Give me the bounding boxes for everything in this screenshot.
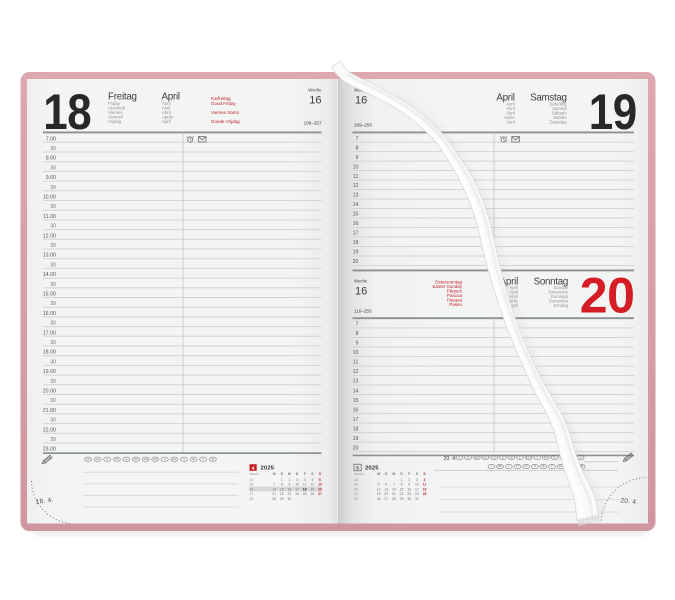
svg-text:IRL: IRL: [172, 457, 177, 461]
svg-text:14: 14: [353, 202, 359, 208]
svg-text:9: 9: [356, 341, 359, 347]
svg-text:E: E: [126, 457, 128, 461]
svg-text:18: 18: [353, 240, 359, 246]
svg-text:22: 22: [400, 492, 404, 496]
svg-text:12: 12: [377, 487, 381, 491]
svg-text:30: 30: [50, 204, 56, 210]
svg-text:13: 13: [353, 193, 359, 199]
svg-text:3: 3: [296, 478, 298, 482]
svg-text:2025: 2025: [261, 466, 275, 472]
svg-text:5: 5: [356, 465, 359, 471]
svg-text:20: 20: [318, 487, 322, 491]
svg-text:M: M: [288, 472, 291, 476]
svg-text:30: 30: [50, 418, 56, 424]
svg-text:109–256: 109–256: [354, 123, 372, 128]
svg-text:17: 17: [353, 231, 359, 237]
svg-text:GB: GB: [144, 457, 148, 461]
svg-text:10: 10: [353, 164, 359, 170]
svg-text:13: 13: [384, 487, 388, 491]
svg-text:30: 30: [50, 379, 56, 385]
svg-text:CZ: CZ: [492, 456, 496, 460]
svg-text:13: 13: [353, 379, 359, 385]
svg-text:B: B: [467, 456, 469, 460]
svg-text:8: 8: [356, 331, 359, 337]
svg-text:April: April: [162, 119, 171, 124]
svg-text:7: 7: [273, 483, 275, 487]
svg-text:10: 10: [295, 483, 299, 487]
svg-text:8.00: 8.00: [46, 156, 56, 162]
svg-text:LT: LT: [516, 464, 519, 468]
svg-text:27: 27: [384, 497, 388, 501]
svg-text:Woche: Woche: [354, 278, 368, 283]
svg-text:DK: DK: [510, 456, 514, 460]
svg-text:17.00: 17.00: [43, 330, 56, 336]
svg-text:24: 24: [295, 492, 299, 496]
svg-text:31: 31: [415, 497, 419, 501]
svg-text:D: D: [502, 456, 504, 460]
svg-text:19: 19: [353, 436, 359, 442]
svg-text:12: 12: [353, 369, 359, 375]
svg-text:16: 16: [407, 487, 411, 491]
svg-text:20: 20: [354, 487, 358, 491]
svg-text:15: 15: [353, 212, 359, 218]
svg-text:FIN: FIN: [134, 457, 138, 461]
svg-text:D: D: [106, 457, 108, 461]
svg-text:N: N: [183, 457, 185, 461]
svg-text:H: H: [164, 457, 166, 461]
svg-text:12: 12: [311, 483, 315, 487]
svg-text:IRL: IRL: [498, 464, 503, 468]
svg-text:21: 21: [354, 492, 358, 496]
svg-text:16: 16: [288, 487, 292, 491]
svg-text:15: 15: [250, 483, 254, 487]
svg-text:LV: LV: [525, 464, 528, 468]
svg-text:27: 27: [318, 492, 322, 496]
svg-text:1: 1: [401, 478, 403, 482]
svg-text:13: 13: [318, 483, 322, 487]
svg-text:16: 16: [355, 286, 367, 298]
svg-text:E: E: [519, 456, 521, 460]
svg-text:A: A: [459, 456, 461, 460]
svg-text:17: 17: [353, 417, 359, 423]
svg-text:29: 29: [280, 497, 284, 501]
svg-text:21: 21: [392, 492, 396, 496]
svg-text:10.00: 10.00: [43, 195, 56, 201]
svg-text:7: 7: [356, 136, 359, 142]
svg-text:M: M: [393, 472, 396, 476]
svg-text:17: 17: [250, 492, 254, 496]
svg-text:18: 18: [303, 487, 307, 491]
svg-text:18.00: 18.00: [43, 350, 56, 356]
svg-text:18: 18: [423, 487, 427, 491]
svg-text:Pasen: Pasen: [449, 302, 462, 307]
svg-text:P: P: [202, 457, 204, 461]
svg-text:15: 15: [400, 487, 404, 491]
svg-text:NL: NL: [192, 457, 196, 461]
svg-text:13.00: 13.00: [43, 253, 56, 259]
svg-text:30: 30: [50, 165, 56, 171]
svg-text:30: 30: [50, 243, 56, 249]
svg-text:20: 20: [580, 267, 635, 323]
svg-text:17: 17: [415, 487, 419, 491]
svg-text:10: 10: [415, 483, 419, 487]
svg-text:GR: GR: [153, 457, 157, 461]
svg-text:18: 18: [354, 478, 358, 482]
svg-text:30: 30: [50, 359, 56, 365]
svg-text:12.00: 12.00: [43, 233, 56, 239]
svg-text:19.00: 19.00: [43, 369, 56, 375]
svg-text:15: 15: [280, 487, 284, 491]
svg-text:14.00: 14.00: [43, 272, 56, 278]
svg-text:30: 30: [50, 301, 56, 307]
svg-text:4: 4: [304, 478, 306, 482]
svg-text:PL: PL: [559, 464, 563, 468]
svg-text:6: 6: [319, 478, 321, 482]
svg-text:Vrijdag: Vrijdag: [108, 119, 122, 124]
svg-text:SK: SK: [211, 457, 215, 461]
svg-text:Woche: Woche: [250, 472, 260, 476]
svg-text:BG: BG: [475, 456, 479, 460]
svg-text:22.00: 22.00: [43, 427, 56, 433]
svg-text:8: 8: [356, 145, 359, 151]
svg-text:15: 15: [353, 398, 359, 404]
svg-text:EST: EST: [526, 456, 531, 460]
svg-text:9: 9: [356, 155, 359, 161]
svg-text:CH: CH: [86, 457, 90, 461]
svg-text:16: 16: [250, 487, 254, 491]
svg-text:FIN: FIN: [544, 456, 548, 460]
svg-text:20. 4:: 20. 4:: [444, 456, 457, 462]
svg-text:30: 30: [50, 340, 56, 346]
svg-text:5: 5: [378, 483, 380, 487]
svg-text:11: 11: [353, 174, 359, 180]
svg-text:26: 26: [311, 492, 315, 496]
svg-text:N: N: [534, 464, 536, 468]
svg-text:16: 16: [309, 95, 321, 107]
svg-text:19: 19: [311, 487, 315, 491]
svg-text:25: 25: [303, 492, 307, 496]
svg-text:1: 1: [281, 478, 283, 482]
svg-text:F: F: [408, 472, 410, 476]
svg-text:19: 19: [353, 250, 359, 256]
svg-text:P: P: [551, 464, 553, 468]
svg-text:19: 19: [377, 492, 381, 496]
svg-text:24: 24: [415, 492, 419, 496]
svg-text:9: 9: [288, 483, 290, 487]
svg-text:7: 7: [356, 322, 359, 328]
svg-text:23: 23: [288, 492, 292, 496]
svg-text:Good Friday: Good Friday: [211, 101, 237, 106]
svg-text:11: 11: [353, 360, 359, 366]
svg-text:DK: DK: [115, 457, 119, 461]
svg-text:19: 19: [354, 483, 358, 487]
svg-text:NL: NL: [542, 464, 546, 468]
svg-text:16.00: 16.00: [43, 311, 56, 317]
svg-text:9: 9: [408, 483, 410, 487]
svg-text:CZ: CZ: [96, 457, 100, 461]
svg-text:18: 18: [353, 426, 359, 432]
svg-text:14: 14: [250, 478, 254, 482]
svg-text:108–257: 108–257: [304, 121, 322, 126]
svg-text:30: 30: [50, 321, 56, 327]
svg-text:30: 30: [50, 398, 56, 404]
svg-text:2025: 2025: [365, 466, 379, 472]
svg-text:5: 5: [311, 478, 313, 482]
svg-text:10: 10: [353, 350, 359, 356]
svg-text:30: 30: [50, 262, 56, 268]
svg-text:18: 18: [250, 497, 254, 501]
svg-text:21: 21: [272, 492, 276, 496]
svg-text:20: 20: [384, 492, 388, 496]
svg-text:16: 16: [353, 407, 359, 413]
svg-text:12: 12: [353, 183, 359, 189]
svg-text:28: 28: [392, 497, 396, 501]
svg-text:CH: CH: [484, 456, 488, 460]
svg-text:14: 14: [353, 388, 359, 394]
svg-text:April: April: [506, 120, 515, 125]
svg-text:22: 22: [280, 492, 284, 496]
svg-text:Zaterdag: Zaterdag: [549, 120, 567, 125]
svg-text:Goede Vrijdag: Goede Vrijdag: [211, 119, 240, 124]
svg-text:7.00: 7.00: [46, 136, 56, 142]
svg-text:15.00: 15.00: [43, 292, 56, 298]
svg-text:11: 11: [423, 483, 427, 487]
svg-text:9.00: 9.00: [46, 175, 56, 181]
svg-text:26: 26: [377, 497, 381, 501]
svg-text:Woche: Woche: [354, 472, 364, 476]
svg-text:2: 2: [288, 478, 290, 482]
svg-text:2: 2: [408, 478, 410, 482]
svg-text:M: M: [377, 472, 380, 476]
svg-text:F: F: [304, 472, 306, 476]
svg-text:7: 7: [393, 483, 395, 487]
svg-text:6: 6: [385, 483, 387, 487]
svg-text:4: 4: [252, 465, 255, 471]
svg-text:11: 11: [303, 483, 307, 487]
svg-text:21.00: 21.00: [43, 408, 56, 414]
svg-text:23: 23: [407, 492, 411, 496]
svg-text:30: 30: [50, 437, 56, 443]
svg-text:M: M: [273, 472, 276, 476]
svg-text:20: 20: [353, 445, 359, 451]
svg-text:29: 29: [400, 497, 404, 501]
svg-text:3: 3: [416, 478, 418, 482]
svg-text:28: 28: [272, 497, 276, 501]
svg-text:30: 30: [288, 497, 292, 501]
svg-text:16: 16: [353, 221, 359, 227]
svg-text:4: 4: [424, 478, 426, 482]
svg-text:16: 16: [355, 95, 367, 107]
svg-text:25: 25: [423, 492, 427, 496]
svg-text:20.00: 20.00: [43, 389, 56, 395]
svg-text:23.00: 23.00: [43, 447, 56, 453]
svg-text:30: 30: [407, 497, 411, 501]
svg-text:Viernes Santo: Viernes Santo: [211, 110, 240, 115]
svg-text:14: 14: [272, 487, 276, 491]
svg-text:30: 30: [50, 282, 56, 288]
svg-text:17: 17: [295, 487, 299, 491]
svg-text:Zondag: Zondag: [553, 303, 568, 308]
svg-text:30: 30: [50, 224, 56, 230]
svg-text:8: 8: [401, 483, 403, 487]
svg-text:Woche: Woche: [308, 88, 322, 93]
svg-text:30: 30: [50, 185, 56, 191]
svg-text:110–255: 110–255: [354, 309, 372, 314]
svg-text:11.00: 11.00: [43, 214, 56, 220]
svg-text:22: 22: [354, 497, 358, 501]
svg-text:8: 8: [281, 483, 283, 487]
svg-text:30: 30: [50, 146, 56, 152]
svg-text:14: 14: [392, 487, 396, 491]
svg-text:20: 20: [353, 259, 359, 265]
